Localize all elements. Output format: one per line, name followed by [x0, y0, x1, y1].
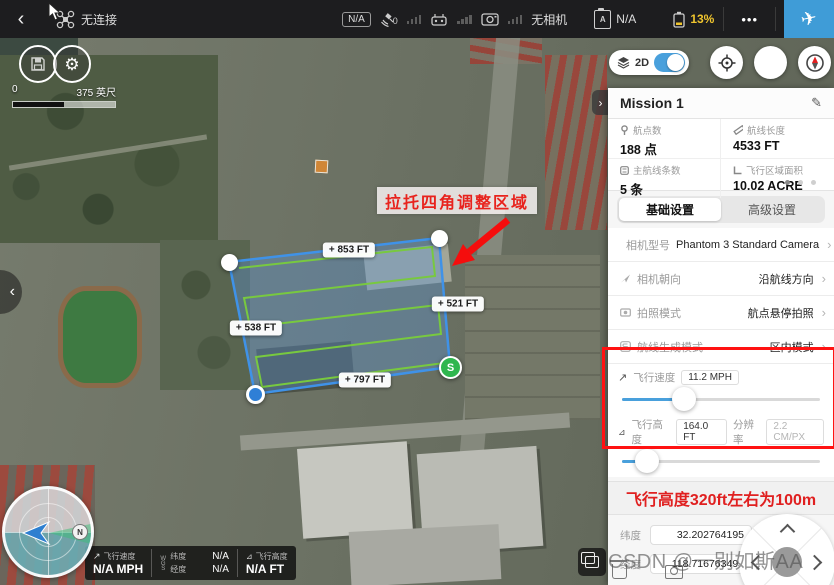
resolution-value: 2.2 CM/PX: [766, 419, 824, 445]
speed-icon: ↗: [618, 371, 627, 384]
map-mode-label: 2D: [635, 57, 649, 69]
telemetry-bar: ↗飞行速度 N/A MPH WGS 纬度N/A 经度N/A ⊿飞行高度 N/A …: [85, 546, 296, 580]
gps-mode-badge: N/A: [342, 12, 371, 27]
scale-start-label: 0: [12, 84, 18, 99]
mouse-cursor: [48, 2, 62, 22]
speed-slider[interactable]: [618, 387, 824, 411]
polygon-handle-top-left[interactable]: [221, 254, 238, 271]
battery-level: 13%: [690, 12, 714, 26]
chevron-right-icon: ›: [822, 305, 826, 320]
datum-label: WGS: [160, 556, 166, 571]
compass-north-badge: N: [72, 524, 88, 540]
map-imagery-building1: [297, 441, 413, 538]
plane-icon: ✈: [799, 6, 819, 32]
gps-signal-bars-icon: [407, 15, 422, 24]
chevron-right-icon: ›: [822, 271, 826, 286]
altitude-value-input[interactable]: 164.0 FT: [676, 419, 727, 445]
stat-area: 飞行区域面积 10.02 ACRE: [721, 159, 834, 198]
tab-basic-settings[interactable]: 基础设置: [619, 198, 721, 221]
tutorial-annotation: 拉托四角调整区域: [377, 187, 537, 214]
compass-reset-button[interactable]: [798, 46, 831, 79]
satellite-count: 0: [393, 16, 398, 26]
camera-status-label: 无相机: [531, 11, 567, 28]
crosshair-icon: [718, 54, 736, 72]
chevron-left-icon: ‹: [10, 283, 15, 301]
takeoff-button[interactable]: ✈: [784, 0, 834, 38]
photo-mode-icon: [620, 307, 631, 318]
flight-parameter-sliders: ↗ 飞行速度 11.2 MPH ⊿ 飞行高度 164.0 FT 分辨率 2.2 …: [608, 363, 834, 477]
camera-signal-bars-icon: [508, 15, 523, 24]
edit-mission-button[interactable]: ✎: [811, 95, 822, 111]
settings-rows: 相机型号 Phantom 3 Standard Camera › 相机朝向 沿航…: [608, 228, 834, 363]
altitude-icon: ⊿: [246, 552, 253, 561]
remote-controller-icon: [430, 12, 448, 27]
compass-needle-icon: [805, 53, 825, 73]
heading-icon: [620, 273, 631, 284]
left-panel-expand-handle[interactable]: ‹: [0, 270, 22, 314]
speed-icon: ↗: [93, 551, 101, 562]
map-imagery-gray-blocks: [465, 255, 600, 420]
area-icon: [733, 166, 742, 175]
row-route-mode[interactable]: 航线生成模式 区内模式 ›: [608, 330, 834, 363]
speed-value-input[interactable]: 11.2 MPH: [681, 370, 739, 385]
altitude-slider-thumb[interactable]: [635, 449, 659, 473]
mission-title: Mission 1: [620, 95, 684, 111]
save-mission-button[interactable]: [19, 45, 57, 83]
2d-toggle-switch[interactable]: [654, 53, 685, 72]
edge-length-label-top: + 853 FT: [323, 243, 375, 258]
stats-pagination-dots[interactable]: [785, 180, 816, 185]
stat-main-lines: 主航线条数 5 条: [608, 159, 721, 198]
layers-icon: [617, 56, 630, 69]
map-mode-toggle[interactable]: 2D: [609, 50, 689, 75]
scale-end-label: 375 英尺: [77, 84, 116, 99]
minimap-thumbnail-button[interactable]: [754, 46, 787, 79]
map-imagery-field: [58, 286, 142, 388]
waypoint-icon: [620, 125, 629, 135]
map-imagery-poi: [315, 160, 329, 174]
altitude-slider[interactable]: [618, 449, 824, 473]
connection-status-label: 无连接: [81, 11, 117, 28]
map-imagery-building3: [349, 524, 502, 585]
watermark: CSDN @一别如斯AA: [608, 545, 834, 574]
telemetry-coordinates: WGS 纬度N/A 经度N/A: [152, 546, 237, 580]
export-layers-button[interactable]: [578, 548, 606, 576]
row-camera-heading[interactable]: 相机朝向 沿航线方向 ›: [608, 262, 834, 296]
polygon-handle-bottom-left[interactable]: [246, 385, 265, 404]
edge-length-label-left: + 538 FT: [230, 321, 282, 336]
stat-waypoints: 航点数 188 点: [608, 119, 721, 159]
save-icon: [31, 57, 45, 71]
aircraft-connection-status: 无连接: [56, 10, 117, 29]
mission-stats: 航点数 188 点 航线长度 4533 FT 主航线条数 5 条 飞行区域面积 …: [608, 119, 834, 191]
route-start-marker[interactable]: S: [439, 356, 462, 379]
telemetry-speed: ↗飞行速度 N/A MPH: [85, 546, 151, 580]
tab-advanced-settings[interactable]: 高级设置: [721, 198, 823, 221]
edge-length-label-bottom: + 797 FT: [339, 373, 391, 388]
camera-icon: [481, 12, 499, 26]
app-window: S + 853 FT + 521 FT + 538 FT + 797 FT 拉托…: [0, 0, 834, 585]
latitude-input[interactable]: 32.202764195: [650, 525, 752, 545]
top-status-bar: ‹ 无连接 N/A 0 无相机 A N/A 13%: [0, 0, 834, 38]
map-scale-bar: 0 375 英尺: [12, 84, 116, 108]
gear-icon: ⚙: [64, 56, 79, 73]
altitude-annotation-note: 飞行高度320ft左右为100m: [608, 481, 834, 515]
altitude-icon: ⊿: [618, 427, 626, 438]
mission-panel: Mission 1 ✎ 航点数 188 点 航线长度 4533 FT 主航线条数…: [608, 88, 834, 585]
panel-collapse-handle[interactable]: ›: [592, 90, 609, 115]
mission-settings-button[interactable]: ⚙: [53, 45, 91, 83]
flight-mode-value: N/A: [616, 12, 636, 26]
flight-mode-icon: A: [594, 10, 611, 29]
back-button[interactable]: ‹: [0, 0, 42, 38]
rc-signal-bars-icon: [457, 15, 472, 24]
telemetry-altitude: ⊿飞行高度 N/A FT: [238, 546, 296, 580]
altitude-slider-group: ⊿ 飞行高度 164.0 FT 分辨率 2.2 CM/PX: [618, 417, 824, 473]
map-imagery-redroofs-top: [545, 55, 607, 230]
row-camera-model[interactable]: 相机型号 Phantom 3 Standard Camera ›: [608, 228, 834, 262]
chevron-right-icon: ›: [827, 237, 831, 252]
route-lines-icon: [620, 166, 629, 175]
route-mode-icon: [620, 341, 631, 352]
mission-header: Mission 1 ✎: [608, 88, 834, 119]
copy-icon: [585, 556, 599, 568]
locate-button[interactable]: [710, 46, 743, 79]
polygon-handle-top-right[interactable]: [431, 230, 448, 247]
chevron-right-icon: ›: [822, 339, 826, 354]
speed-slider-thumb[interactable]: [672, 387, 696, 411]
row-photo-mode[interactable]: 拍照模式 航点悬停拍照 ›: [608, 296, 834, 330]
stat-route-length: 航线长度 4533 FT: [721, 119, 834, 159]
speed-slider-group: ↗ 飞行速度 11.2 MPH: [618, 370, 824, 411]
ruler-icon: [733, 125, 743, 135]
more-menu-button[interactable]: •••: [733, 12, 766, 27]
battery-icon: [673, 11, 685, 28]
map-imagery-roof1: [363, 244, 452, 291]
aircraft-arrow-icon: [23, 522, 49, 544]
edge-length-label-right: + 521 FT: [432, 297, 484, 312]
chevron-right-icon: ›: [599, 96, 603, 110]
nudge-up-button[interactable]: [780, 524, 796, 540]
